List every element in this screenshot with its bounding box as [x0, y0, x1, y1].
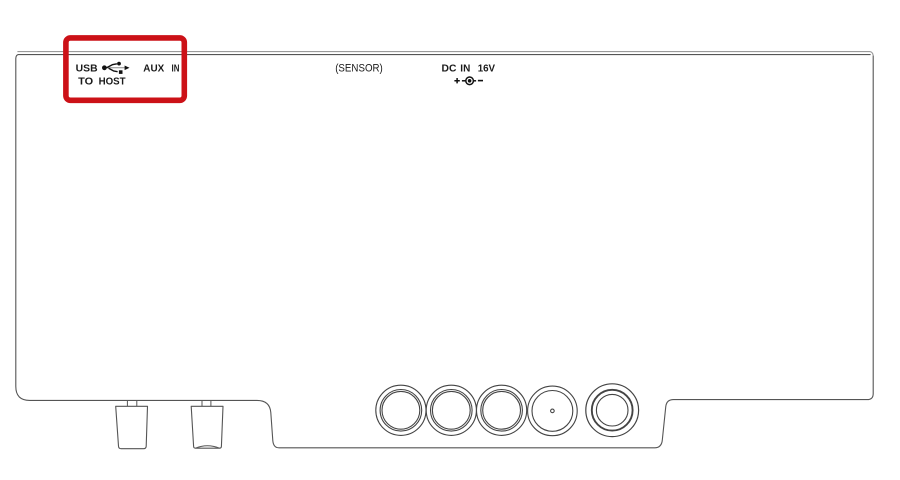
svg-text:16V: 16V: [478, 64, 496, 75]
svg-text:IN: IN: [172, 64, 180, 75]
svg-text:HOST: HOST: [99, 77, 127, 88]
svg-text:USB: USB: [76, 64, 98, 75]
svg-text:TO: TO: [78, 77, 93, 88]
svg-text:IN: IN: [460, 64, 470, 75]
svg-text:(SENSOR): (SENSOR): [335, 63, 383, 75]
svg-text:AUX: AUX: [143, 64, 164, 75]
svg-text:DC: DC: [442, 64, 457, 75]
